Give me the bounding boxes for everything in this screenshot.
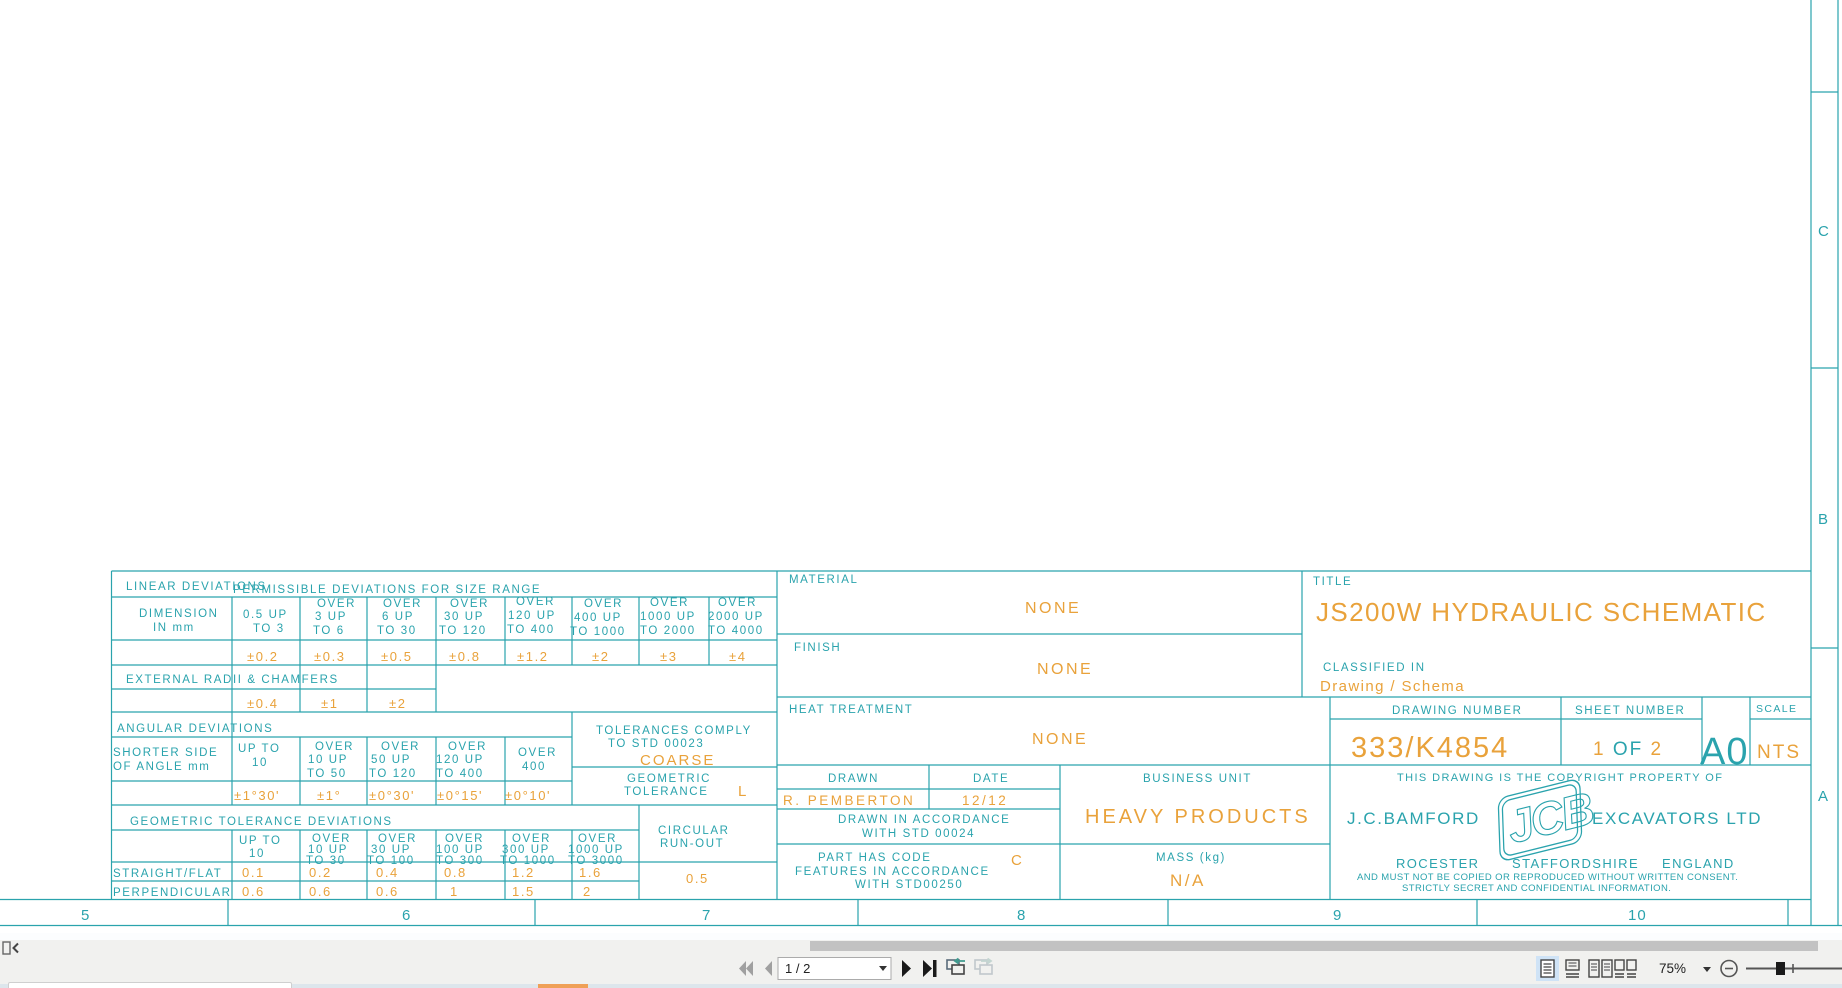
svg-text:ROCESTER: ROCESTER xyxy=(1396,856,1479,871)
svg-text:DRAWN IN ACCORDANCE: DRAWN IN ACCORDANCE xyxy=(838,814,1010,826)
svg-text:UP TO: UP TO xyxy=(238,743,281,755)
svg-text:0.6: 0.6 xyxy=(376,884,399,899)
svg-text:HEAT TREATMENT: HEAT TREATMENT xyxy=(789,704,913,716)
svg-text:2000 UP: 2000 UP xyxy=(708,611,764,623)
svg-text:OVER: OVER xyxy=(317,598,356,610)
svg-text:±0.4: ±0.4 xyxy=(247,696,279,711)
svg-text:TOLERANCE: TOLERANCE xyxy=(624,786,708,798)
svg-text:WITH STD 00024: WITH STD 00024 xyxy=(862,828,975,840)
svg-text:0.5: 0.5 xyxy=(686,871,709,886)
svg-text:0.6: 0.6 xyxy=(309,884,332,899)
svg-text:NTS: NTS xyxy=(1757,742,1801,763)
svg-text:±1.2: ±1.2 xyxy=(517,649,549,664)
svg-text:C: C xyxy=(1011,852,1024,869)
svg-text:J.C.BAMFORD: J.C.BAMFORD xyxy=(1347,809,1480,828)
svg-text:OVER: OVER xyxy=(383,598,422,610)
svg-text:±1°30': ±1°30' xyxy=(234,788,280,803)
svg-text:2: 2 xyxy=(583,884,592,899)
svg-text:EXTERNAL RADII & CHAMFERS: EXTERNAL RADII & CHAMFERS xyxy=(126,674,339,686)
svg-text:ENGLAND: ENGLAND xyxy=(1662,856,1735,871)
svg-text:DATE: DATE xyxy=(973,773,1009,785)
svg-text:TO 2000: TO 2000 xyxy=(640,625,696,637)
svg-text:TO 400: TO 400 xyxy=(507,624,555,636)
svg-text:UP TO: UP TO xyxy=(239,835,282,847)
svg-text:75%: 75% xyxy=(1659,961,1686,976)
svg-text:400 UP: 400 UP xyxy=(574,612,622,624)
svg-text:TO 4000: TO 4000 xyxy=(708,625,764,637)
svg-text:OF ANGLE mm: OF ANGLE mm xyxy=(113,761,210,773)
svg-text:OVER: OVER xyxy=(518,747,557,759)
svg-text:1 / 2: 1 / 2 xyxy=(785,961,810,976)
svg-text:±0.2: ±0.2 xyxy=(247,649,279,664)
svg-text:8: 8 xyxy=(1017,907,1026,924)
svg-text:TOLERANCES COMPLY: TOLERANCES COMPLY xyxy=(596,725,752,737)
svg-text:0.1: 0.1 xyxy=(242,865,265,880)
svg-text:THIS DRAWING IS THE COPYRIGHT: THIS DRAWING IS THE COPYRIGHT PROPERTY O… xyxy=(1397,772,1723,784)
svg-text:10: 10 xyxy=(249,848,265,860)
svg-text:±2: ±2 xyxy=(592,649,610,664)
svg-text:ANGULAR DEVIATIONS: ANGULAR DEVIATIONS xyxy=(117,723,273,735)
svg-text:7: 7 xyxy=(702,907,711,924)
svg-text:TO 120: TO 120 xyxy=(439,625,487,637)
svg-text:HEAVY PRODUCTS: HEAVY PRODUCTS xyxy=(1085,806,1311,828)
svg-text:N/A: N/A xyxy=(1170,871,1206,890)
svg-text:6 UP: 6 UP xyxy=(382,611,414,623)
svg-text:CLASSIFIED IN: CLASSIFIED IN xyxy=(1323,662,1426,674)
svg-text:CIRCULAR: CIRCULAR xyxy=(658,825,730,837)
svg-text:3 UP: 3 UP xyxy=(315,611,347,623)
svg-text:120 UP: 120 UP xyxy=(436,754,484,766)
svg-text:STAFFORDSHIRE: STAFFORDSHIRE xyxy=(1512,856,1639,871)
svg-text:R. PEMBERTON: R. PEMBERTON xyxy=(783,793,915,808)
svg-text:A0: A0 xyxy=(1700,731,1748,773)
svg-text:OVER: OVER xyxy=(381,741,420,753)
svg-text:±2: ±2 xyxy=(389,696,407,711)
svg-text:NONE: NONE xyxy=(1025,600,1081,617)
svg-text:FINISH: FINISH xyxy=(794,642,841,654)
svg-text:TO 6: TO 6 xyxy=(313,625,345,637)
svg-text:SCALE: SCALE xyxy=(1756,703,1797,715)
svg-text:400: 400 xyxy=(522,761,546,773)
svg-text:1.6: 1.6 xyxy=(579,865,602,880)
svg-text:9: 9 xyxy=(1333,907,1342,924)
svg-text:10: 10 xyxy=(1628,907,1647,924)
svg-text:OVER: OVER xyxy=(315,741,354,753)
svg-text:JCB: JCB xyxy=(1502,782,1599,853)
svg-text:AND MUST NOT BE COPIED OR REPR: AND MUST NOT BE COPIED OR REPRODUCED WIT… xyxy=(1357,872,1738,883)
svg-text:Drawing / Schema: Drawing / Schema xyxy=(1320,678,1465,695)
svg-text:±0°15': ±0°15' xyxy=(437,788,483,803)
svg-text:GEOMETRIC: GEOMETRIC xyxy=(627,773,711,785)
svg-text:PERPENDICULAR: PERPENDICULAR xyxy=(113,887,232,899)
svg-text:OVER: OVER xyxy=(516,596,555,608)
svg-text:JS200W HYDRAULIC SCHEMATIC: JS200W HYDRAULIC SCHEMATIC xyxy=(1316,597,1767,627)
svg-text:DRAWN: DRAWN xyxy=(828,773,879,785)
svg-text:C: C xyxy=(1818,223,1830,240)
svg-text:TO 50: TO 50 xyxy=(307,768,347,780)
svg-text:±3: ±3 xyxy=(660,649,678,664)
svg-text:333/K4854: 333/K4854 xyxy=(1351,732,1509,764)
svg-text:±0°10': ±0°10' xyxy=(505,788,551,803)
svg-text:OVER: OVER xyxy=(650,597,689,609)
svg-text:NONE: NONE xyxy=(1037,661,1093,678)
svg-text:L: L xyxy=(738,783,746,800)
svg-text:TITLE: TITLE xyxy=(1313,576,1352,588)
svg-text:6: 6 xyxy=(402,907,411,924)
svg-text:±0.8: ±0.8 xyxy=(449,649,481,664)
svg-text:1.5: 1.5 xyxy=(512,884,535,899)
svg-text:NONE: NONE xyxy=(1032,731,1088,748)
svg-text:OVER: OVER xyxy=(450,598,489,610)
svg-text:SHEET NUMBER: SHEET NUMBER xyxy=(1575,705,1685,717)
svg-text:TO 400: TO 400 xyxy=(436,768,484,780)
svg-text:10 UP: 10 UP xyxy=(308,754,348,766)
svg-text:0.2: 0.2 xyxy=(309,865,332,880)
svg-text:B: B xyxy=(1818,511,1829,528)
svg-text:0.4: 0.4 xyxy=(376,865,399,880)
svg-text:GEOMETRIC TOLERANCE DEVIATIONS: GEOMETRIC TOLERANCE DEVIATIONS xyxy=(130,816,393,828)
svg-text:±0.3: ±0.3 xyxy=(314,649,346,664)
svg-text:120 UP: 120 UP xyxy=(508,610,556,622)
svg-text:DRAWING NUMBER: DRAWING NUMBER xyxy=(1392,705,1523,717)
svg-text:PERMISSIBLE DEVIATIONS FOR SIZ: PERMISSIBLE DEVIATIONS FOR SIZE RANGE xyxy=(233,584,541,596)
svg-text:10: 10 xyxy=(252,757,268,769)
svg-text:1: 1 xyxy=(450,884,459,899)
svg-text:SHORTER SIDE: SHORTER SIDE xyxy=(113,747,218,759)
svg-text:WITH STD00250: WITH STD00250 xyxy=(855,879,963,891)
svg-text:1000 UP: 1000 UP xyxy=(640,611,696,623)
svg-text:±1: ±1 xyxy=(321,696,339,711)
svg-text:STRAIGHT/FLAT: STRAIGHT/FLAT xyxy=(113,868,222,880)
svg-text:0.8: 0.8 xyxy=(444,865,467,880)
svg-text:12/12: 12/12 xyxy=(962,793,1008,808)
svg-text:1.2: 1.2 xyxy=(512,865,535,880)
svg-text:IN mm: IN mm xyxy=(153,622,195,634)
svg-text:A: A xyxy=(1818,788,1829,805)
svg-text:30 UP: 30 UP xyxy=(444,611,484,623)
svg-text:OVER: OVER xyxy=(448,741,487,753)
svg-text:1 OF 2: 1 OF 2 xyxy=(1593,739,1663,760)
svg-text:TO 120: TO 120 xyxy=(369,768,417,780)
svg-text:MATERIAL: MATERIAL xyxy=(789,574,858,586)
svg-text:±0°30': ±0°30' xyxy=(369,788,415,803)
svg-text:TO 3: TO 3 xyxy=(253,623,285,635)
svg-text:EXCAVATORS LTD: EXCAVATORS LTD xyxy=(1592,809,1762,828)
svg-text:DIMENSION: DIMENSION xyxy=(139,608,219,620)
svg-text:OVER: OVER xyxy=(584,598,623,610)
svg-text:±0.5: ±0.5 xyxy=(381,649,413,664)
svg-text:OVER: OVER xyxy=(718,597,757,609)
svg-text:PART HAS CODE: PART HAS CODE xyxy=(818,852,931,864)
svg-text:BUSINESS UNIT: BUSINESS UNIT xyxy=(1143,773,1252,785)
svg-text:5: 5 xyxy=(81,907,90,924)
svg-text:0.6: 0.6 xyxy=(242,884,265,899)
svg-text:0.5 UP: 0.5 UP xyxy=(243,609,288,621)
svg-text:STRICTLY SECRET AND CONFIDENTI: STRICTLY SECRET AND CONFIDENTIAL INFORMA… xyxy=(1402,883,1671,894)
svg-text:50 UP: 50 UP xyxy=(371,754,411,766)
svg-text:COARSE: COARSE xyxy=(640,752,715,769)
svg-text:TO 30: TO 30 xyxy=(377,625,417,637)
svg-text:MASS (kg): MASS (kg) xyxy=(1156,852,1226,864)
svg-text:TO STD 00023: TO STD 00023 xyxy=(608,738,704,750)
svg-text:RUN-OUT: RUN-OUT xyxy=(660,838,724,850)
svg-text:TO 1000: TO 1000 xyxy=(570,626,626,638)
svg-text:±4: ±4 xyxy=(729,649,747,664)
svg-text:FEATURES IN ACCORDANCE: FEATURES IN ACCORDANCE xyxy=(795,866,990,878)
svg-text:±1°: ±1° xyxy=(317,788,341,803)
